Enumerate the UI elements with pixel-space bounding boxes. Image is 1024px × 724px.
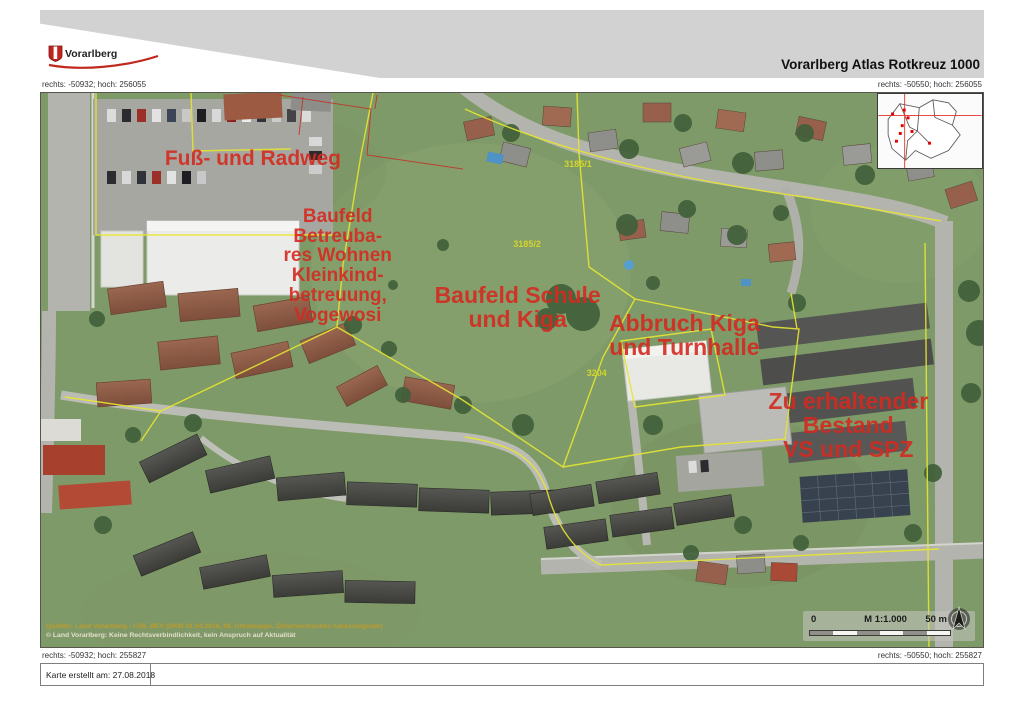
scalebar-distance: 50 m (925, 614, 947, 625)
vorarlberg-logo: Vorarlberg (46, 40, 166, 76)
scalebar-bar (809, 630, 951, 636)
inset-overview-map (877, 93, 983, 169)
sources-line1: Quellen: Land Vorarlberg - LVB, BEV (DKM… (46, 623, 383, 631)
footer-table: Karte erstellt am: 27.08.2018 (40, 663, 984, 686)
page-title: Vorarlberg Atlas Rotkreuz 1000 (781, 57, 980, 72)
logo-shield-icon (49, 46, 62, 62)
aerial-photo (41, 93, 984, 648)
logo-text: Vorarlberg (65, 48, 117, 60)
footer-empty-cell (151, 664, 983, 685)
coord-top-right: rechts: -50550; hoch: 256055 (878, 80, 982, 89)
scalebar: 0 M 1:1.000 50 m (803, 611, 975, 641)
north-arrow-icon (947, 599, 971, 639)
map-canvas: Fuß- und RadwegBaufeldBetreuba-res Wohne… (40, 92, 984, 648)
coord-bottom-left: rechts: -50932; hoch: 255827 (42, 651, 146, 660)
coordinate-row-bottom: rechts: -50932; hoch: 255827 rechts: -50… (40, 650, 984, 663)
coord-top-left: rechts: -50932; hoch: 256055 (42, 80, 146, 89)
created-date-cell: Karte erstellt am: 27.08.2018 (41, 664, 151, 685)
atlas-sheet: Vorarlberg Vorarlberg Atlas Rotkreuz 100… (0, 0, 1024, 724)
sources-line2: © Land Vorarlberg: Keine Rechtsverbindli… (46, 632, 383, 640)
scalebar-ratio: M 1:1.000 (864, 614, 907, 625)
scalebar-zero: 0 (811, 614, 816, 625)
header-band: Vorarlberg Vorarlberg Atlas Rotkreuz 100… (40, 10, 984, 78)
coord-bottom-right: rechts: -50550; hoch: 255827 (878, 651, 982, 660)
coordinate-row-top: rechts: -50932; hoch: 256055 rechts: -50… (40, 79, 984, 92)
map-sources: Quellen: Land Vorarlberg - LVB, BEV (DKM… (46, 623, 383, 640)
